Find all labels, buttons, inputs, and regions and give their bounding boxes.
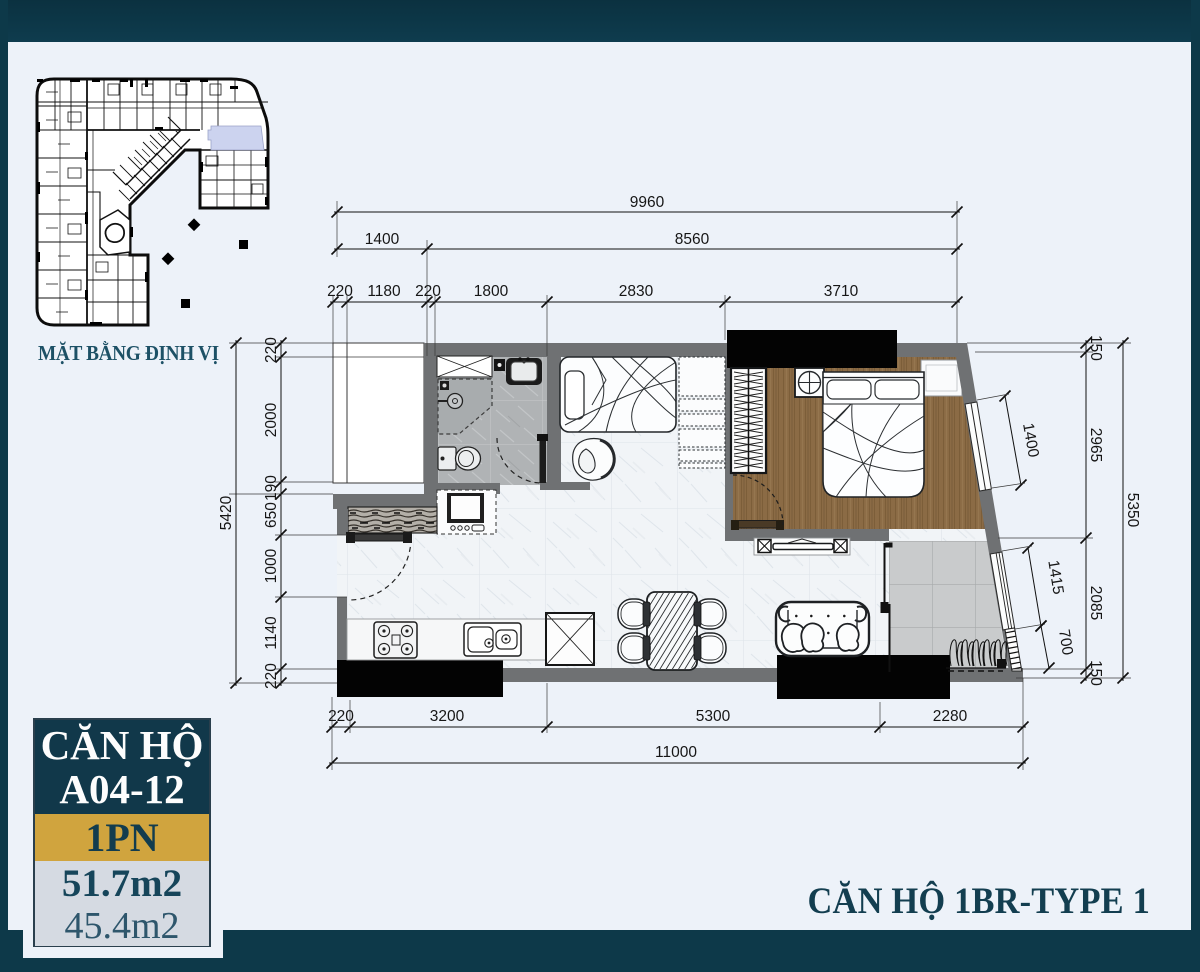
svg-text:220: 220 (415, 283, 441, 300)
svg-text:1800: 1800 (474, 283, 509, 300)
svg-text:2000: 2000 (263, 402, 280, 437)
svg-text:3200: 3200 (430, 708, 465, 725)
svg-text:9960: 9960 (630, 196, 665, 211)
svg-text:1415: 1415 (1044, 559, 1066, 596)
svg-text:5420: 5420 (218, 495, 235, 530)
svg-text:220: 220 (327, 283, 353, 300)
svg-text:11000: 11000 (655, 744, 697, 761)
svg-text:2280: 2280 (933, 708, 968, 725)
svg-text:150: 150 (1087, 660, 1104, 686)
svg-text:650: 650 (263, 502, 280, 528)
svg-text:220: 220 (263, 663, 280, 689)
svg-text:700: 700 (1055, 628, 1076, 657)
svg-text:3710: 3710 (824, 283, 859, 300)
svg-text:1140: 1140 (263, 616, 280, 650)
svg-text:1180: 1180 (367, 283, 401, 300)
svg-text:150: 150 (1087, 335, 1104, 361)
svg-text:1400: 1400 (365, 231, 400, 248)
svg-text:2965: 2965 (1087, 428, 1104, 462)
svg-text:2085: 2085 (1087, 586, 1104, 620)
svg-text:220: 220 (263, 337, 280, 363)
svg-text:1000: 1000 (263, 548, 280, 583)
svg-text:5300: 5300 (696, 708, 731, 725)
svg-text:8560: 8560 (675, 231, 710, 248)
svg-text:190: 190 (263, 475, 280, 501)
svg-text:1400: 1400 (1019, 422, 1042, 459)
svg-text:5350: 5350 (1124, 493, 1140, 528)
svg-text:2830: 2830 (619, 283, 654, 300)
svg-text:220: 220 (328, 708, 354, 725)
